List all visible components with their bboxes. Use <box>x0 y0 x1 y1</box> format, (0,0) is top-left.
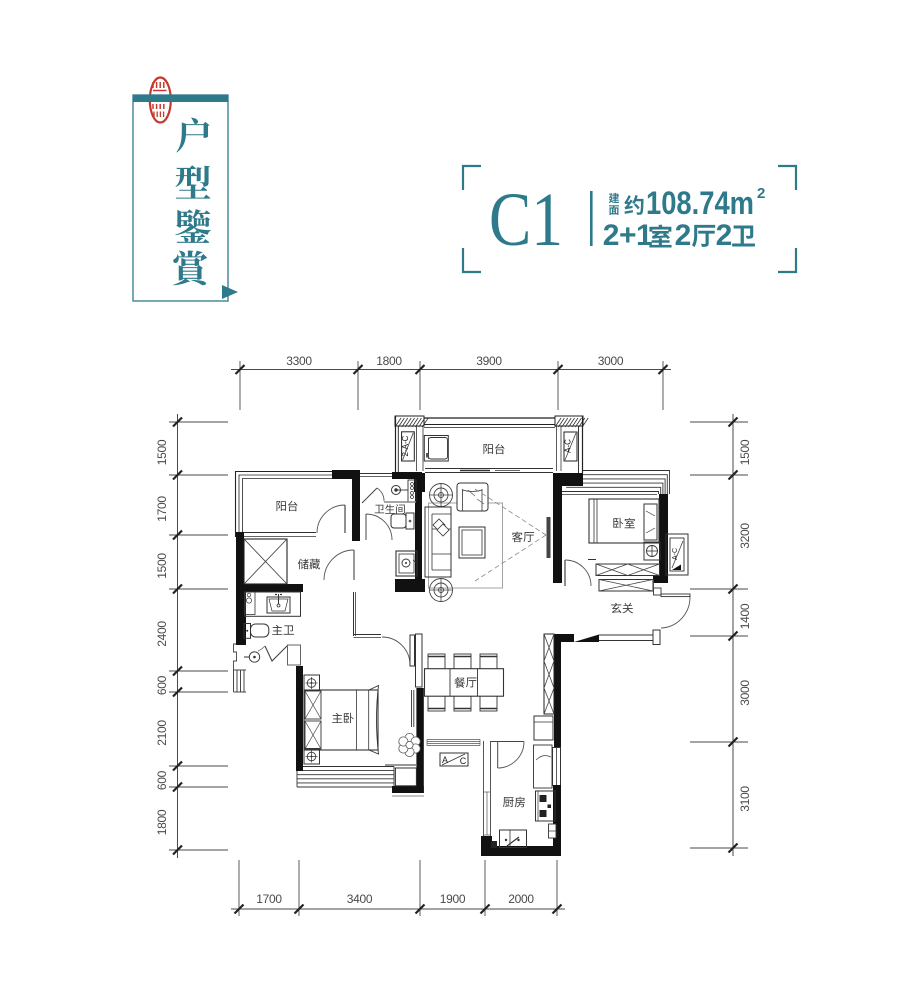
svg-text:1700: 1700 <box>256 892 282 906</box>
svg-text:1700: 1700 <box>155 496 169 522</box>
svg-text:3400: 3400 <box>347 892 373 906</box>
svg-text:2: 2 <box>757 185 765 202</box>
svg-text:C1: C1 <box>489 178 563 262</box>
svg-text:3100: 3100 <box>738 786 752 812</box>
svg-text:108.74m: 108.74m <box>646 185 754 221</box>
svg-text:600: 600 <box>155 770 169 790</box>
svg-text:3200: 3200 <box>738 523 752 549</box>
svg-text:A: A <box>442 755 448 765</box>
svg-text:1800: 1800 <box>376 354 402 368</box>
svg-text:1500: 1500 <box>155 439 169 465</box>
svg-text:A-C: A-C <box>672 548 679 560</box>
svg-text:600: 600 <box>155 675 169 695</box>
svg-text:2: 2 <box>675 219 692 252</box>
svg-text:3000: 3000 <box>598 354 624 368</box>
svg-text:A-C: A-C <box>564 439 573 453</box>
svg-text:2-A-C: 2-A-C <box>401 435 410 456</box>
svg-text:2000: 2000 <box>508 892 534 906</box>
svg-text:2100: 2100 <box>155 720 169 746</box>
svg-text:C: C <box>460 756 467 766</box>
svg-text:1500: 1500 <box>155 553 169 579</box>
svg-text:1800: 1800 <box>155 809 169 835</box>
svg-text:3000: 3000 <box>738 680 752 706</box>
svg-text:3300: 3300 <box>286 354 312 368</box>
svg-text:1500: 1500 <box>738 439 752 465</box>
svg-text:2+1: 2+1 <box>603 219 652 252</box>
svg-text:3900: 3900 <box>476 354 502 368</box>
svg-text:1900: 1900 <box>440 892 466 906</box>
svg-text:1400: 1400 <box>738 603 752 629</box>
svg-text:2400: 2400 <box>155 621 169 647</box>
svg-text:2: 2 <box>716 219 733 252</box>
